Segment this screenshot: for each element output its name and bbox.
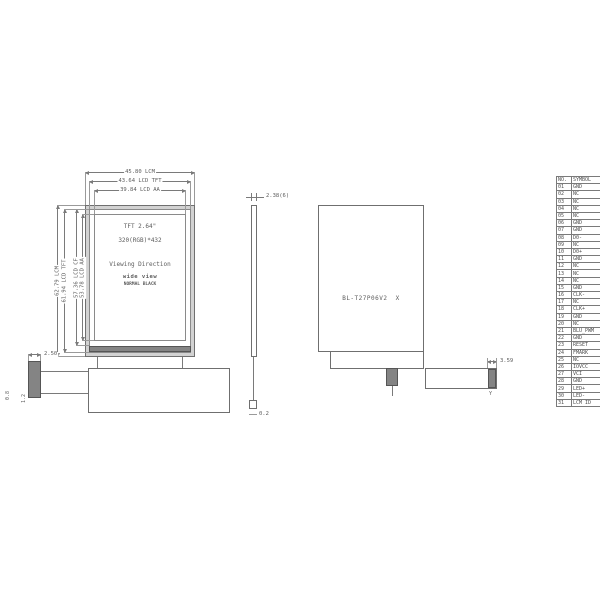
dim-tft-height: 61.94 LCD TFT <box>64 209 65 353</box>
pin-symbol: VCI <box>572 371 600 378</box>
pin-symbol: NC <box>572 299 600 306</box>
dim-stiffener-width-label: 3.59 <box>499 359 514 365</box>
fpc-connector <box>28 361 41 398</box>
leader-line <box>249 414 257 415</box>
side-view-fpc-tail <box>253 357 254 402</box>
pin-symbol: NC <box>572 241 600 248</box>
extension-line <box>82 214 94 215</box>
pin-number: 31 <box>557 399 572 406</box>
extension-line <box>40 354 41 361</box>
pin-symbol: D0- <box>572 234 600 241</box>
dim-aa-width: 39.84 LCD AA <box>94 190 186 191</box>
dim-fpc-b-label: 1.2 <box>22 394 27 403</box>
pin-symbol: GND <box>572 378 600 385</box>
pin-row: 18 CLK+ <box>557 306 600 313</box>
pin-symbol: NC <box>572 205 600 212</box>
pin-row: 16 CLK- <box>557 292 600 299</box>
pin-number: 25 <box>557 356 572 363</box>
pin-row: 29 LED+ <box>557 385 600 392</box>
extension-line <box>185 190 186 214</box>
pin-row: 05 NC <box>557 212 600 219</box>
pin-number: 30 <box>557 392 572 399</box>
pin-row: 17 NC <box>557 299 600 306</box>
back-view-connector-pin <box>392 386 393 396</box>
pin-row: 31 LCM ID <box>557 399 600 406</box>
dim-lcm-height-label: 62.79 LCM <box>55 265 61 297</box>
back-view-outline <box>318 205 424 352</box>
pin-number: 01 <box>557 184 572 191</box>
panel-resolution-label: 320(RGB)*432 <box>118 238 161 244</box>
pin-number: 15 <box>557 284 572 291</box>
extension-line <box>194 172 195 205</box>
pin-no-header: NO. <box>557 177 572 184</box>
pin-symbol: CLK+ <box>572 306 600 313</box>
pin-number: 05 <box>557 212 572 219</box>
fpc-fold-line <box>182 357 183 368</box>
pin-row: 21 BLU_PWM <box>557 327 600 334</box>
pin-row: 09 NC <box>557 241 600 248</box>
back-view-lower-step <box>330 351 424 369</box>
fpc-fold-line <box>97 357 98 368</box>
extension-line <box>64 352 89 353</box>
panel-size-label: TFT 2.64" <box>124 224 157 230</box>
extension-line <box>94 190 95 214</box>
pin-symbol: NC <box>572 356 600 363</box>
dim-thickness-tick <box>251 193 252 201</box>
pin-symbol: NC <box>572 263 600 270</box>
pin-row: 30 LED- <box>557 392 600 399</box>
back-view-connector <box>386 368 398 386</box>
pin-row: 14 NC <box>557 277 600 284</box>
pin-symbol: GND <box>572 284 600 291</box>
pin-symbol: CLK- <box>572 292 600 299</box>
pin-number: 22 <box>557 335 572 342</box>
pin-number: 10 <box>557 248 572 255</box>
pin-row: 02 NC <box>557 191 600 198</box>
extension-line <box>487 358 488 368</box>
pin-table-header-row: NO. SYMBOL <box>557 177 600 184</box>
pin-symbol: GND <box>572 256 600 263</box>
panel-mode-label: NORMAL BLACK <box>124 283 157 288</box>
pin-number: 23 <box>557 342 572 349</box>
pin-symbol: NC <box>572 270 600 277</box>
pin-symbol: D0+ <box>572 248 600 255</box>
pin-row: 13 NC <box>557 270 600 277</box>
pin-symbol: BLU_PWM <box>572 327 600 334</box>
pin-number: 19 <box>557 313 572 320</box>
dim-aa-height-label: 53.78 LCD AA <box>80 257 86 299</box>
pin-number: 07 <box>557 227 572 234</box>
pin-number: 06 <box>557 220 572 227</box>
pin-row: 03 NC <box>557 198 600 205</box>
pin-row: 15 GND <box>557 284 600 291</box>
pin-number: 14 <box>557 277 572 284</box>
extension-line <box>57 356 85 357</box>
pin-number: 29 <box>557 385 572 392</box>
pin-symbol: GND <box>572 335 600 342</box>
pin-row: 27 VCI <box>557 371 600 378</box>
pin-symbol: NC <box>572 198 600 205</box>
pin-row: 24 FMARK <box>557 349 600 356</box>
pin-symbol: LCM ID <box>572 399 600 406</box>
fpc-stiffener <box>488 369 496 388</box>
fpc-tail-detail <box>425 368 497 389</box>
pin-number: 02 <box>557 191 572 198</box>
fpc-mark-label: Y <box>489 392 492 397</box>
pin-number: 26 <box>557 363 572 370</box>
pin-number: 04 <box>557 205 572 212</box>
pin-symbol: NC <box>572 277 600 284</box>
pin-row: 10 D0+ <box>557 248 600 255</box>
pin-number: 08 <box>557 234 572 241</box>
panel-view-type-label: wide view <box>123 275 157 281</box>
dim-aa-width-label: 39.84 LCD AA <box>119 188 161 194</box>
dim-cf-height: 57.36 LCD CF <box>76 209 77 346</box>
pin-table: NO. SYMBOL 01 GND 02 NC 03 NC <box>556 176 600 407</box>
dim-fpc-thickness-label: 0.2 <box>259 412 269 418</box>
side-view-body <box>251 205 257 357</box>
pin-number: 17 <box>557 299 572 306</box>
model-number-label: BL-T27P06V2 X <box>318 296 424 302</box>
dim-fpc-a-label: 0.8 <box>6 391 11 400</box>
panel-viewing-direction-label: Viewing Direction <box>109 262 170 268</box>
pin-symbol: RESET <box>572 342 600 349</box>
extension-line <box>82 340 94 341</box>
extension-line <box>496 358 497 368</box>
pin-symbol: NC <box>572 320 600 327</box>
fpc-cable-edge <box>41 393 88 394</box>
lcd-module-drawing: TFT 2.64" 320(RGB)*432 Viewing Direction… <box>0 0 600 600</box>
extension-line <box>76 345 89 346</box>
side-view-fpc-foot <box>249 400 257 409</box>
pin-number: 16 <box>557 292 572 299</box>
dim-lcm-width: 45.80 LCM <box>85 172 195 173</box>
pin-symbol: GND <box>572 184 600 191</box>
extension-line <box>89 181 90 209</box>
pin-symbol: GND <box>572 227 600 234</box>
pin-number: 20 <box>557 320 572 327</box>
pin-number: 27 <box>557 371 572 378</box>
front-view-ic-strip <box>89 346 191 352</box>
pin-symbol: GND <box>572 220 600 227</box>
pin-number: 18 <box>557 306 572 313</box>
dim-connector-width-label: 2.50 <box>43 352 58 358</box>
pin-symbol: NC <box>572 191 600 198</box>
pin-number: 21 <box>557 327 572 334</box>
pin-row: 25 NC <box>557 356 600 363</box>
pin-row: 07 GND <box>557 227 600 234</box>
dim-tft-width: 43.64 LCD TFT <box>89 181 191 182</box>
pin-symbol: GND <box>572 313 600 320</box>
pin-number: 24 <box>557 349 572 356</box>
pin-row: 28 GND <box>557 378 600 385</box>
dim-tft-height-label: 61.94 LCD TFT <box>62 258 68 303</box>
fpc-cable-edge <box>41 371 88 372</box>
pin-symbol: NC <box>572 212 600 219</box>
panel-spec-text: TFT 2.64" 320(RGB)*432 Viewing Direction… <box>94 214 186 341</box>
pin-row: 26 IOVCC <box>557 363 600 370</box>
pin-number: 12 <box>557 263 572 270</box>
pin-row: 08 D0- <box>557 234 600 241</box>
extension-line <box>64 209 89 210</box>
dim-lcm-height: 62.79 LCM <box>57 205 58 357</box>
pin-row: 23 RESET <box>557 342 600 349</box>
pin-symbol-header: SYMBOL <box>572 177 600 184</box>
extension-line <box>190 181 191 209</box>
pin-number: 28 <box>557 378 572 385</box>
pin-symbol: FMARK <box>572 349 600 356</box>
pin-row: 22 GND <box>557 335 600 342</box>
pin-row: 04 NC <box>557 205 600 212</box>
pin-number: 11 <box>557 256 572 263</box>
dim-aa-height: 53.78 LCD AA <box>82 214 83 341</box>
pin-row: 12 NC <box>557 263 600 270</box>
extension-line <box>85 172 86 205</box>
pin-symbol: LED+ <box>572 385 600 392</box>
pin-symbol: IOVCC <box>572 363 600 370</box>
dim-thickness-line <box>246 197 264 198</box>
fpc-flat-area <box>88 368 230 413</box>
pin-row: 11 GND <box>557 256 600 263</box>
pin-number: 13 <box>557 270 572 277</box>
pin-number: 09 <box>557 241 572 248</box>
dim-lcm-width-label: 45.80 LCM <box>124 170 156 176</box>
extension-line <box>57 205 85 206</box>
extension-line <box>28 354 29 361</box>
pin-row: 19 GND <box>557 313 600 320</box>
dim-thickness-tick <box>256 193 257 201</box>
pin-row: 20 NC <box>557 320 600 327</box>
pin-symbol: LED- <box>572 392 600 399</box>
pin-row: 06 GND <box>557 220 600 227</box>
pin-number: 03 <box>557 198 572 205</box>
dim-thickness-label: 2.38(6) <box>266 194 289 200</box>
pin-row: 01 GND <box>557 184 600 191</box>
dim-tft-width-label: 43.64 LCD TFT <box>117 179 162 185</box>
